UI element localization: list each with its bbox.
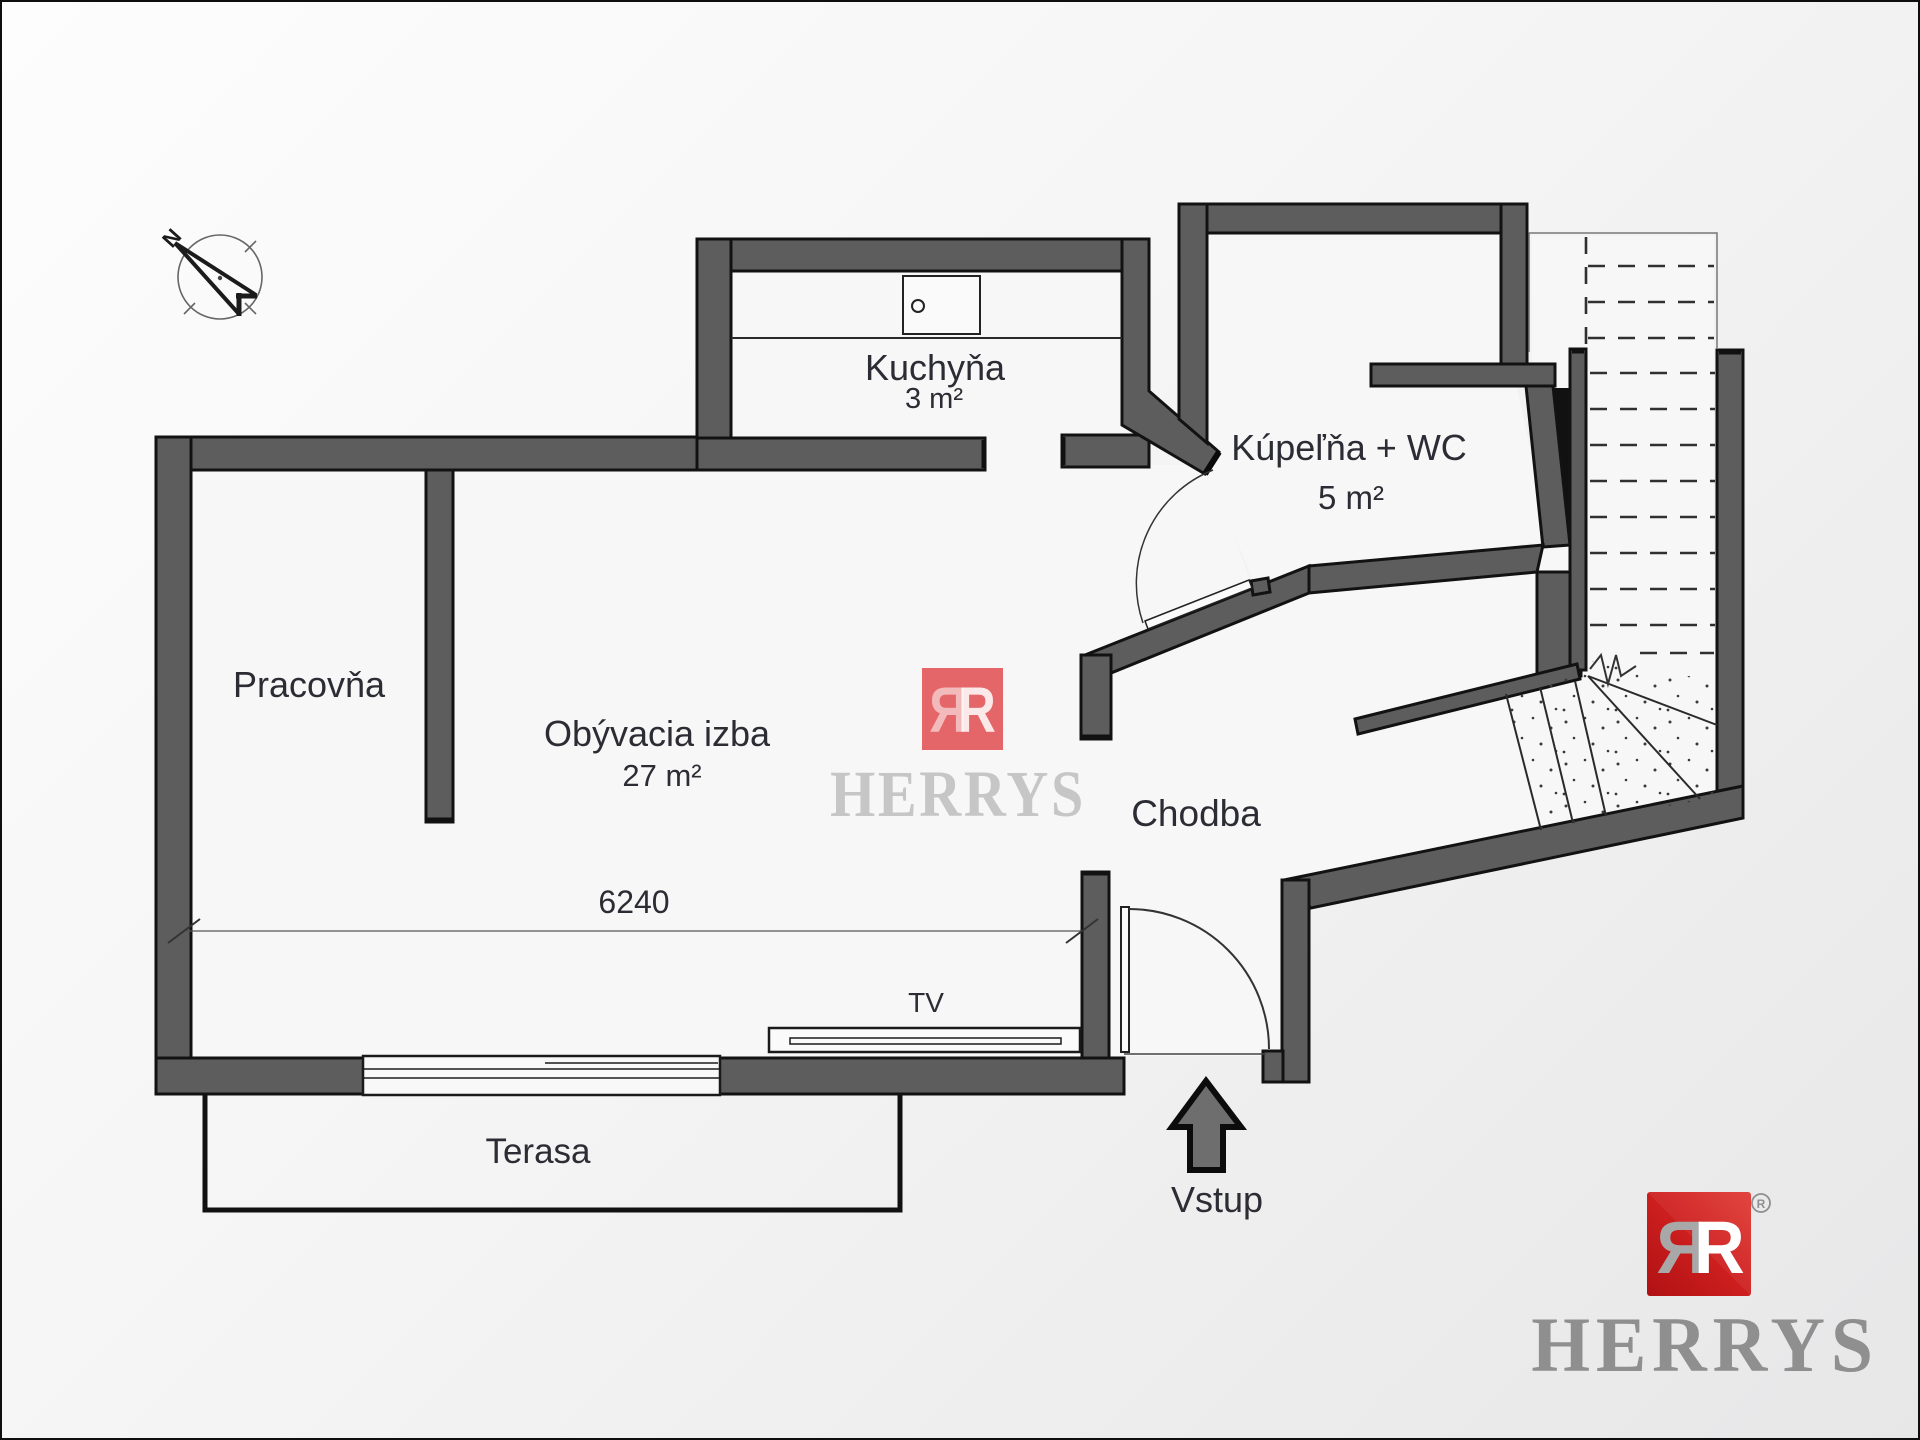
svg-text:TV: TV [908,987,944,1018]
svg-text:3 m²: 3 m² [905,383,963,415]
svg-text:Kuchyňa: Kuchyňa [865,347,1006,388]
svg-text:Terasa: Terasa [485,1132,591,1171]
svg-text:6240: 6240 [598,884,669,920]
svg-text:HERRYS: HERRYS [830,759,1086,831]
svg-text:27 m²: 27 m² [622,758,701,793]
svg-text:Obývacia izba: Obývacia izba [544,713,771,754]
svg-text:Vstup: Vstup [1171,1179,1263,1220]
svg-text:HERRYS: HERRYS [1531,1302,1879,1388]
svg-text:R: R [1757,1197,1766,1211]
svg-text:Chodba: Chodba [1131,793,1261,834]
svg-text:Pracovňa: Pracovňa [233,664,386,705]
svg-text:R: R [958,675,996,746]
svg-text:5 m²: 5 m² [1318,479,1384,516]
svg-text:R: R [1694,1207,1745,1289]
svg-text:Kúpeľňa + WC: Kúpeľňa + WC [1231,427,1467,468]
